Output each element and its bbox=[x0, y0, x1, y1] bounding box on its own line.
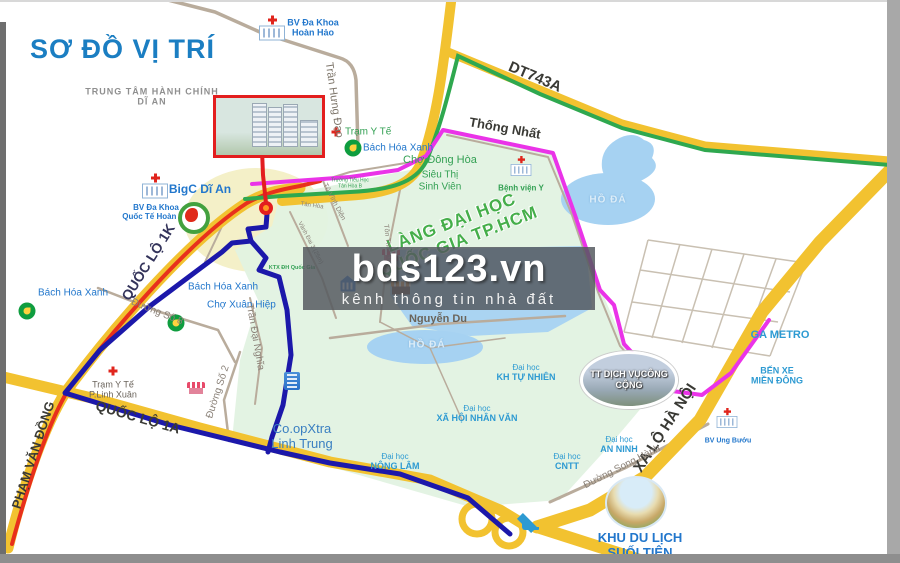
hospital-icon bbox=[259, 16, 285, 41]
university-label: Đại họcKH TỰ NHIÊN bbox=[497, 363, 556, 383]
suoi-tien-photo bbox=[605, 476, 667, 530]
project-tower-icon bbox=[268, 107, 282, 147]
bigc-label: BigC Dĩ An bbox=[169, 182, 231, 196]
graduation-cap-icon bbox=[515, 514, 539, 532]
lake-label: HỒ ĐÁ bbox=[589, 195, 626, 206]
red-cross-icon bbox=[109, 367, 118, 376]
sieu-thi-label: Siêu ThịSinh Viên bbox=[419, 170, 462, 193]
watermark-brand: bds123.vn bbox=[352, 250, 547, 288]
tram-linh-xuan-label: Trạm Y TếP.Linh Xuân bbox=[89, 380, 137, 401]
ga-metro-label: GA METRO bbox=[751, 329, 810, 341]
project-tower-icon bbox=[283, 104, 298, 147]
bach-hoa-xanh-label: Bách Hóa Xanh bbox=[363, 143, 433, 154]
project-photo bbox=[213, 95, 325, 158]
red-cross-icon bbox=[151, 174, 160, 183]
bach-hoa-xanh-icon bbox=[19, 303, 36, 320]
dormitory-icon bbox=[284, 372, 300, 390]
market-icon bbox=[187, 382, 205, 394]
page-title: SƠ ĐỒ VỊ TRÍ bbox=[30, 34, 215, 65]
cho-dong-hoa-label: Chợ Đông Hòa bbox=[403, 154, 477, 166]
frame-border-bottom bbox=[0, 554, 900, 563]
tram-y-te-label: Trạm Y Tế bbox=[345, 127, 391, 138]
project-marker-core bbox=[263, 205, 269, 211]
service-center-label: TT DỊCH VỤCÔNG CỘNG bbox=[583, 369, 675, 391]
service-center-photo: TT DỊCH VỤCÔNG CỘNG bbox=[580, 351, 678, 409]
school-label: Trường Tiểu HọcTân Hòa B bbox=[331, 178, 369, 190]
frame-border-top bbox=[0, 0, 900, 2]
university-label: Đại họcXÃ HỘI NHÂN VĂN bbox=[436, 404, 517, 424]
university-label: Đại họcAN NINH bbox=[600, 435, 638, 455]
university-label: Đại họcCNTT bbox=[553, 452, 580, 472]
university-label: Đại họcNÔNG LÂM bbox=[371, 452, 420, 472]
hospital-icon bbox=[717, 408, 738, 428]
project-building-icon bbox=[300, 120, 318, 147]
ben-xe-label: BẾN XEMIỀN ĐÔNG bbox=[751, 366, 803, 387]
project-tower-icon bbox=[252, 103, 267, 147]
road-label-nguyen-du: Nguyễn Du bbox=[409, 313, 467, 325]
coopxtra-label: Co.opXtraLinh Trung bbox=[271, 422, 332, 452]
frame-border-right bbox=[887, 0, 900, 563]
hospital-icon bbox=[511, 156, 532, 176]
frame-border-left bbox=[0, 22, 6, 563]
red-cross-icon bbox=[723, 408, 730, 415]
bigc-icon bbox=[178, 202, 210, 234]
location-map: SƠ ĐỒ VỊ TRÍ TRUNG TÂM HÀNH CHÍNH DĨ AN … bbox=[0, 0, 900, 563]
bach-hoa-xanh-icon bbox=[345, 140, 362, 157]
hospital-icon bbox=[142, 174, 168, 199]
red-cross-icon bbox=[517, 156, 524, 163]
bv-ung-buou-label: BV Ung Bướu bbox=[705, 438, 752, 445]
bv-hoan-hao-label: BV Đa KhoaHoàn Hảo bbox=[287, 18, 339, 39]
bach-hoa-xanh-label: Bách Hóa Xanh bbox=[188, 282, 258, 293]
bach-hoa-xanh-label: Bách Hóa Xanh bbox=[38, 288, 108, 299]
admin-center-label: TRUNG TÂM HÀNH CHÍNH DĨ AN bbox=[85, 87, 219, 108]
cho-xuan-hiep-label: Chợ Xuân Hiệp bbox=[207, 300, 276, 311]
watermark-tagline: kênh thông tin nhà đất bbox=[342, 291, 556, 308]
lake-label: HỒ ĐÁ bbox=[408, 340, 445, 351]
red-cross-icon bbox=[268, 16, 277, 25]
watermark: bds123.vn kênh thông tin nhà đất bbox=[303, 247, 595, 310]
